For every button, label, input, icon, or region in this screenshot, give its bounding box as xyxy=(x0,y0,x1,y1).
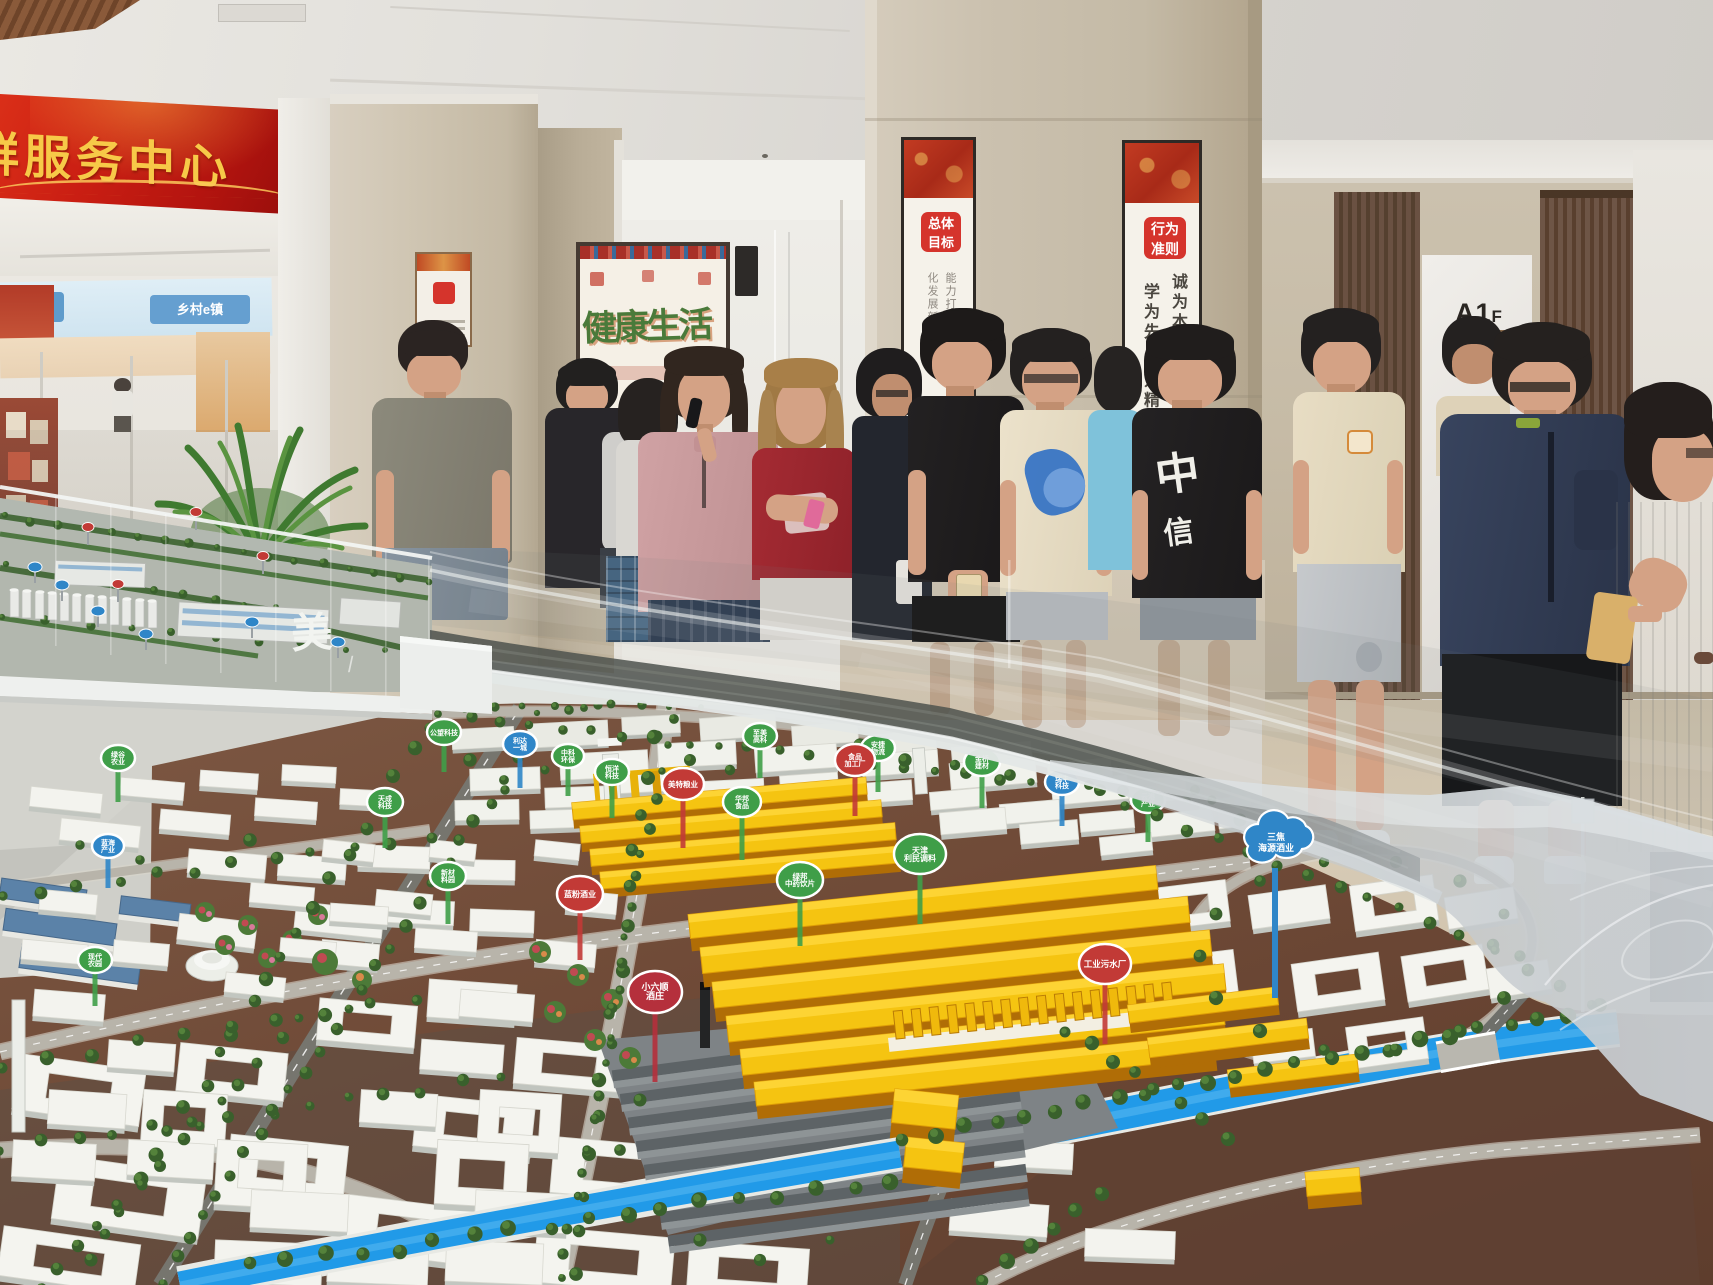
svg-text:至美: 至美 xyxy=(753,728,768,737)
svg-text:瑞丰: 瑞丰 xyxy=(1055,774,1069,783)
svg-text:酒庄: 酒庄 xyxy=(646,990,664,1001)
svg-text:料园: 料园 xyxy=(441,875,455,884)
svg-text:现代: 现代 xyxy=(88,952,102,961)
svg-text:利达: 利达 xyxy=(513,736,527,745)
svg-text:建材: 建材 xyxy=(975,761,989,770)
svg-text:金桥: 金桥 xyxy=(974,754,990,763)
svg-text:利民调料: 利民调料 xyxy=(903,853,936,863)
svg-text:科技: 科技 xyxy=(1055,781,1070,790)
svg-text:安捷: 安捷 xyxy=(871,740,886,749)
svg-text:一城: 一城 xyxy=(513,743,527,752)
svg-text:蓝海: 蓝海 xyxy=(101,838,115,847)
svg-text:环保: 环保 xyxy=(561,755,576,764)
svg-text:科技: 科技 xyxy=(605,771,620,780)
svg-text:小六顺: 小六顺 xyxy=(640,981,668,992)
svg-text:蓝粉酒业: 蓝粉酒业 xyxy=(564,889,596,899)
svg-text:高科: 高科 xyxy=(753,735,767,744)
svg-text:新材: 新材 xyxy=(441,868,455,877)
svg-text:华邦: 华邦 xyxy=(735,794,749,803)
svg-text:加工厂: 加工厂 xyxy=(844,759,866,768)
svg-text:食品: 食品 xyxy=(847,752,862,761)
svg-text:公望科技: 公望科技 xyxy=(430,728,459,737)
svg-text:农园: 农园 xyxy=(87,959,102,968)
svg-text:物流: 物流 xyxy=(871,747,885,756)
svg-text:恒洋: 恒洋 xyxy=(604,764,619,773)
svg-text:工业污水厂: 工业污水厂 xyxy=(1084,959,1127,969)
svg-text:天津: 天津 xyxy=(912,845,928,855)
svg-text:绿谷: 绿谷 xyxy=(111,750,126,759)
svg-text:中药饮片: 中药饮片 xyxy=(785,878,815,888)
svg-text:天成: 天成 xyxy=(378,794,392,803)
svg-text:美特粮业: 美特粮业 xyxy=(668,779,698,789)
svg-text:中科: 中科 xyxy=(561,748,575,757)
svg-text:产业: 产业 xyxy=(101,845,115,854)
svg-text:绿邦: 绿邦 xyxy=(793,871,808,881)
svg-text:产业: 产业 xyxy=(1141,799,1155,808)
svg-text:科技: 科技 xyxy=(378,801,393,810)
svg-text:农业: 农业 xyxy=(110,757,125,766)
svg-text:云港: 云港 xyxy=(1141,792,1156,801)
svg-text:食品: 食品 xyxy=(734,801,749,810)
